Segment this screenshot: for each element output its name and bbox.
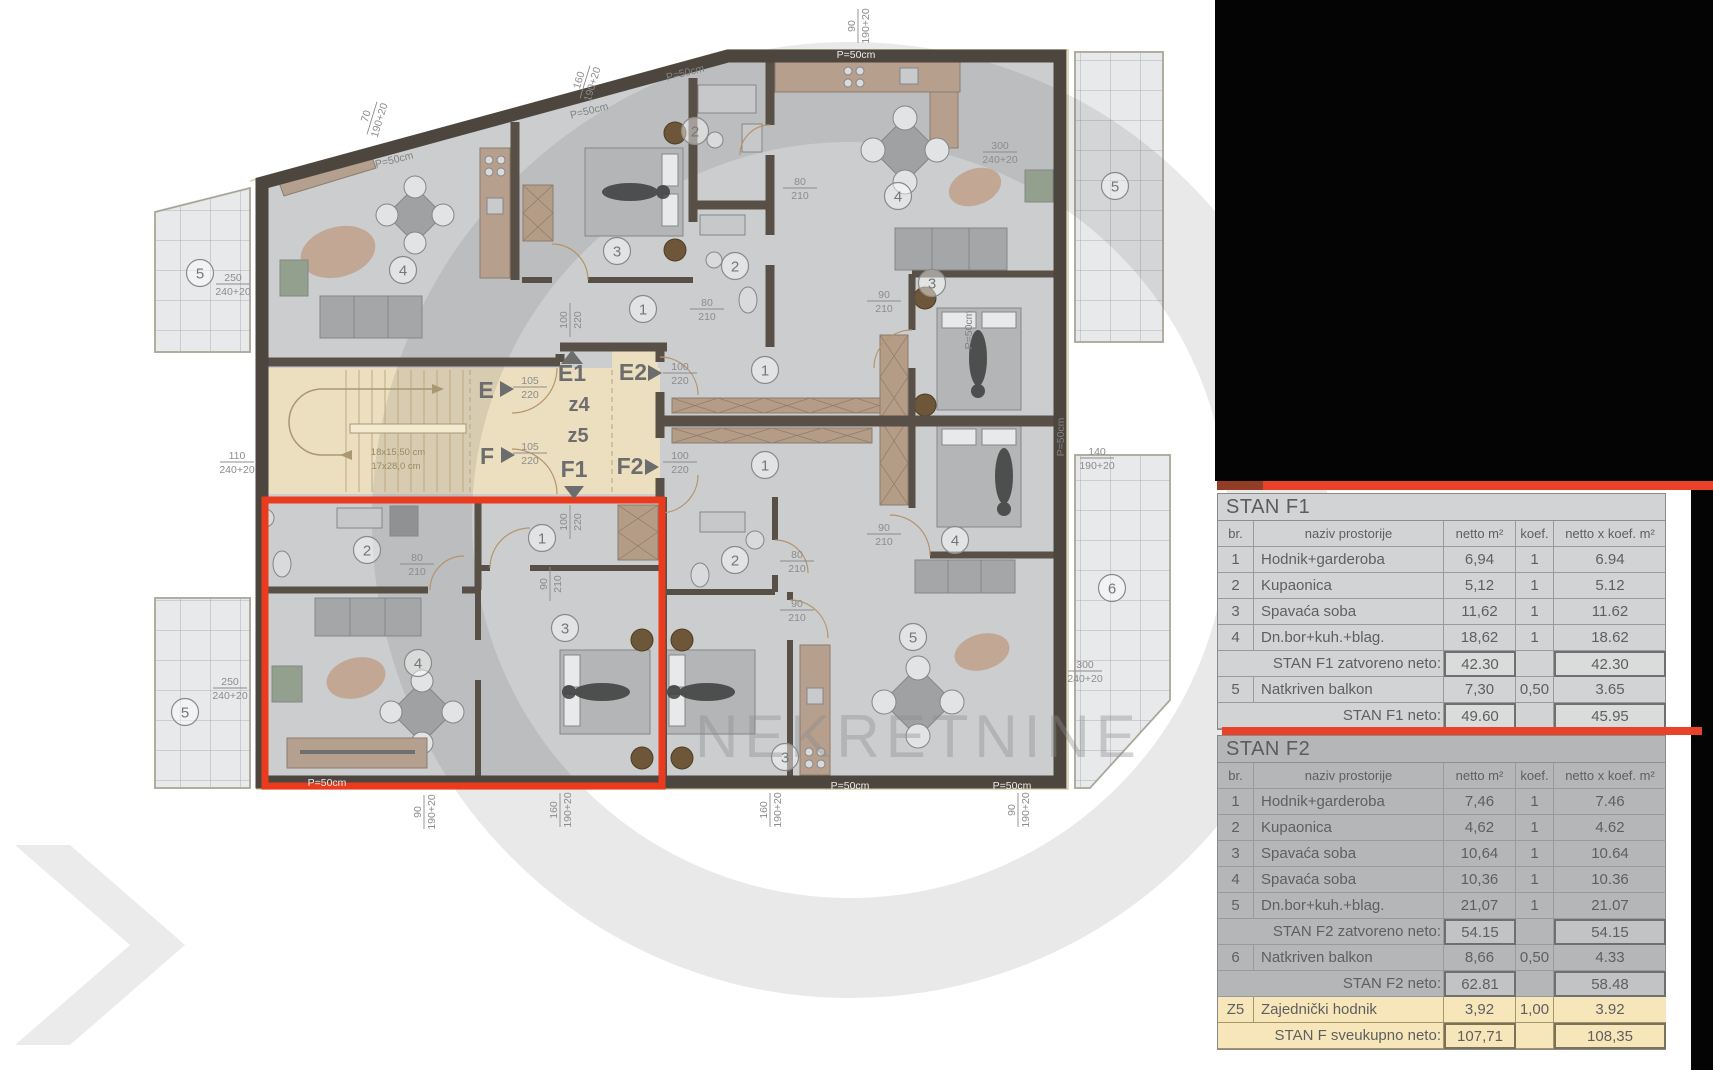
- cell-br: 1: [1218, 789, 1254, 815]
- room-number-circle: 2: [354, 537, 381, 564]
- label-entry-e2: E2: [619, 359, 647, 385]
- room-number-circle: 3: [604, 238, 631, 265]
- room-number-circle: 5: [187, 260, 214, 287]
- table-row: 5 Natkriven balkon 7,30 0,50 3.65: [1218, 677, 1665, 703]
- area-table-stan-f2: STAN F2 br. naziv prostorije netto m² ko…: [1217, 735, 1666, 1050]
- svg-text:90: 90: [538, 578, 550, 590]
- svg-text:2: 2: [731, 553, 739, 570]
- cell-br: 5: [1218, 677, 1254, 703]
- svg-text:240+20: 240+20: [982, 154, 1017, 166]
- svg-text:105: 105: [521, 375, 539, 387]
- cell-netto: 18,62: [1444, 625, 1516, 651]
- table-row: 3 Spavaća soba 10,64 1 10.64: [1218, 841, 1665, 867]
- svg-text:100: 100: [671, 450, 689, 462]
- cell-netto-koef: 6.94: [1554, 547, 1666, 573]
- svg-text:210: 210: [698, 311, 716, 323]
- cell-netto: 6,94: [1444, 547, 1516, 573]
- cell-netto-koef: 4.62: [1554, 815, 1666, 841]
- label-z5: z5: [567, 425, 588, 447]
- svg-text:220: 220: [521, 455, 539, 467]
- table-row: 1 Hodnik+garderoba 7,46 1 7.46: [1218, 789, 1665, 815]
- cell-netto: 3,92: [1444, 997, 1516, 1023]
- svg-text:240+20: 240+20: [212, 690, 247, 702]
- room-number-circle: 1: [752, 452, 779, 479]
- svg-text:5: 5: [181, 705, 189, 722]
- cell-netto-koef: 5.12: [1554, 573, 1666, 599]
- grand-total-label: STAN F sveukupno neto:: [1218, 1023, 1444, 1049]
- cell-room-name: Natkriven balkon: [1254, 945, 1444, 971]
- svg-text:3: 3: [928, 276, 936, 293]
- cell-br: 5: [1218, 893, 1254, 919]
- svg-text:240+20: 240+20: [219, 464, 254, 476]
- svg-text:100: 100: [558, 513, 570, 531]
- cell-room-name: Dn.bor+kuh.+blag.: [1254, 893, 1444, 919]
- cell-netto-koef: 3.92: [1554, 997, 1666, 1023]
- svg-text:210: 210: [408, 566, 426, 578]
- cell-netto: 4,62: [1444, 815, 1516, 841]
- svg-text:240+20: 240+20: [215, 286, 250, 298]
- cell-netto-koef: 21.07: [1554, 893, 1666, 919]
- svg-text:90: 90: [878, 522, 890, 534]
- cell-room-name: Kupaonica: [1254, 573, 1444, 599]
- cell-koef: 1: [1516, 841, 1554, 867]
- cell-room-name: Zajednički hodnik: [1254, 997, 1444, 1023]
- svg-text:190+20: 190+20: [1020, 792, 1032, 827]
- svg-text:5: 5: [196, 266, 204, 283]
- cell-koef: 1: [1516, 867, 1554, 893]
- col-header: naziv prostorije: [1254, 521, 1444, 547]
- total-label: STAN F1 neto:: [1218, 703, 1444, 729]
- masked-strip-right: [1691, 481, 1713, 1070]
- dimension-label: 110240+20: [219, 450, 254, 476]
- col-header: naziv prostorije: [1254, 763, 1444, 789]
- table-row: 5 Dn.bor+kuh.+blag. 21,07 1 21.07: [1218, 893, 1665, 919]
- cell-netto-koef: 11.62: [1554, 599, 1666, 625]
- room-number-circle: 4: [885, 183, 912, 210]
- svg-text:80: 80: [791, 549, 803, 561]
- svg-text:210: 210: [875, 536, 893, 548]
- cell-netto-koef: 7.46: [1554, 789, 1666, 815]
- svg-text:210: 210: [788, 612, 806, 624]
- cell-koef: 1: [1516, 815, 1554, 841]
- parapet-height-label: P=50cm: [1055, 417, 1067, 456]
- cell-koef: 0,50: [1516, 677, 1554, 703]
- total-netto: 49.60: [1444, 703, 1516, 729]
- table-row: 3 Spavaća soba 11,62 1 11.62: [1218, 599, 1665, 625]
- parapet-height-label: P=50cm: [993, 780, 1032, 792]
- agency-watermark-text: NEKRETNINE: [695, 703, 1142, 770]
- col-header: br.: [1218, 763, 1254, 789]
- cell-netto-koef: 4.33: [1554, 945, 1666, 971]
- grand-total-row: STAN F sveukupno neto: 107,71 108,35: [1218, 1023, 1665, 1049]
- cell-netto-koef: 3.65: [1554, 677, 1666, 703]
- cell-koef: 0,50: [1516, 945, 1554, 971]
- svg-text:160: 160: [758, 801, 770, 819]
- cell-koef: 1,00: [1516, 997, 1554, 1023]
- total-total: 58.48: [1554, 971, 1666, 997]
- red-separator-top: [1217, 481, 1713, 490]
- svg-text:3: 3: [613, 244, 621, 261]
- svg-text:5: 5: [1111, 179, 1119, 196]
- svg-text:250: 250: [221, 676, 239, 688]
- cell-netto: 10,36: [1444, 867, 1516, 893]
- svg-text:240+20: 240+20: [1067, 673, 1102, 685]
- table-header-row: br. naziv prostorije netto m² koef. nett…: [1218, 521, 1665, 547]
- subtotal-netto: 42.30: [1444, 651, 1516, 677]
- room-number-circle: 4: [390, 257, 417, 284]
- svg-text:1: 1: [761, 363, 769, 380]
- room-number-circle: 1: [752, 357, 779, 384]
- svg-text:190+20: 190+20: [860, 8, 872, 43]
- table-row: 6 Natkriven balkon 8,66 0,50 4.33: [1218, 945, 1665, 971]
- svg-text:1: 1: [538, 531, 546, 548]
- parapet-height-label: P=50cm: [831, 780, 870, 792]
- svg-text:80: 80: [701, 297, 713, 309]
- svg-text:2: 2: [691, 124, 699, 141]
- table-total-row: STAN F1 neto: 49.60 45.95: [1218, 703, 1665, 729]
- svg-text:90: 90: [846, 20, 858, 32]
- label-entry-e: E: [478, 377, 493, 403]
- room-number-circle: 2: [722, 253, 749, 280]
- label-entry-f: F: [480, 443, 494, 469]
- svg-text:110: 110: [229, 450, 246, 462]
- svg-text:4: 4: [399, 263, 407, 280]
- grand-total-total: 108,35: [1554, 1023, 1666, 1049]
- subtotal-label: STAN F2 zatvoreno neto:: [1218, 919, 1444, 945]
- cell-netto-koef: 10.36: [1554, 867, 1666, 893]
- cell-netto-koef: 18.62: [1554, 625, 1666, 651]
- svg-text:90: 90: [878, 289, 890, 301]
- svg-text:190+20: 190+20: [426, 794, 438, 829]
- dimension-label: 90190+20: [1006, 792, 1032, 827]
- masked-region-top-right: [1215, 0, 1713, 481]
- svg-text:2: 2: [363, 543, 371, 560]
- table-row: 1 Hodnik+garderoba 6,94 1 6.94: [1218, 547, 1665, 573]
- svg-text:220: 220: [671, 375, 689, 387]
- room-number-circle: 1: [630, 296, 657, 323]
- cell-room-name: Spavaća soba: [1254, 867, 1444, 893]
- parapet-height-label: P=50cm: [837, 49, 876, 61]
- cell-netto: 10,64: [1444, 841, 1516, 867]
- svg-text:4: 4: [951, 533, 959, 550]
- table-row: 4 Dn.bor+kuh.+blag. 18,62 1 18.62: [1218, 625, 1665, 651]
- cell-koef: 1: [1516, 893, 1554, 919]
- cell-room-name: Spavaća soba: [1254, 599, 1444, 625]
- cell-br: 1: [1218, 547, 1254, 573]
- total-label: STAN F2 neto:: [1218, 971, 1444, 997]
- subtotal-total: 42.30: [1554, 651, 1666, 677]
- cell-netto: 7,30: [1444, 677, 1516, 703]
- cell-room-name: Natkriven balkon: [1254, 677, 1444, 703]
- table-subtotal-row: STAN F2 zatvoreno neto: 54.15 54.15: [1218, 919, 1665, 945]
- grand-total-netto: 107,71: [1444, 1023, 1516, 1049]
- svg-text:220: 220: [572, 513, 584, 531]
- svg-text:105: 105: [521, 441, 539, 453]
- col-header: netto m²: [1444, 521, 1516, 547]
- svg-text:90: 90: [791, 598, 803, 610]
- table-total-row: STAN F2 neto: 62.81 58.48: [1218, 971, 1665, 997]
- col-header: br.: [1218, 521, 1254, 547]
- room-number-circle: 1: [529, 525, 556, 552]
- table-header-row: br. naziv prostorije netto m² koef. nett…: [1218, 763, 1665, 789]
- table-title-f2: STAN F2: [1218, 736, 1665, 763]
- svg-text:4: 4: [414, 656, 422, 673]
- col-header: netto x koef. m²: [1554, 521, 1666, 547]
- svg-text:80: 80: [411, 552, 423, 564]
- label-entry-f1: F1: [561, 456, 588, 482]
- cell-netto: 8,66: [1444, 945, 1516, 971]
- svg-text:90: 90: [412, 806, 424, 818]
- cell-br: 2: [1218, 815, 1254, 841]
- cell-netto: 5,12: [1444, 573, 1516, 599]
- svg-text:70: 70: [359, 109, 374, 124]
- cell-room-name: Kupaonica: [1254, 815, 1444, 841]
- cell-netto: 21,07: [1444, 893, 1516, 919]
- room-number-circle: 2: [682, 118, 709, 145]
- room-number-circle: 3: [552, 615, 579, 642]
- dimension-label: 70190+20: [355, 97, 390, 139]
- subtotal-total: 54.15: [1554, 919, 1666, 945]
- cell-room-name: Dn.bor+kuh.+blag.: [1254, 625, 1444, 651]
- total-netto: 62.81: [1444, 971, 1516, 997]
- svg-text:100: 100: [671, 361, 689, 373]
- svg-text:1: 1: [761, 458, 769, 475]
- col-header: netto x koef. m²: [1554, 763, 1666, 789]
- room-number-circle: 2: [722, 547, 749, 574]
- col-header: koef.: [1516, 521, 1554, 547]
- cell-koef: 1: [1516, 547, 1554, 573]
- cell-room-name: Spavaća soba: [1254, 841, 1444, 867]
- cell-br: 2: [1218, 573, 1254, 599]
- svg-text:220: 220: [671, 464, 689, 476]
- subtotal-netto: 54.15: [1444, 919, 1516, 945]
- total-koef-empty: [1516, 703, 1554, 729]
- cell-br: 4: [1218, 625, 1254, 651]
- room-number-circle: 3: [919, 270, 946, 297]
- cell-room-name: Hodnik+garderoba: [1254, 547, 1444, 573]
- cell-br: 3: [1218, 599, 1254, 625]
- common-corridor-row: Z5 Zajednički hodnik 3,92 1,00 3.92: [1218, 997, 1665, 1023]
- svg-text:190+20: 190+20: [772, 792, 784, 827]
- col-header: netto m²: [1444, 763, 1516, 789]
- cell-room-name: Hodnik+garderoba: [1254, 789, 1444, 815]
- area-table-stan-f1: STAN F1 br. naziv prostorije netto m² ko…: [1217, 493, 1666, 730]
- room-number-circle: 4: [405, 650, 432, 677]
- cell-koef: 1: [1516, 599, 1554, 625]
- subtotal-koef-empty: [1516, 651, 1554, 677]
- svg-text:220: 220: [572, 311, 584, 329]
- cell-koef: 1: [1516, 573, 1554, 599]
- cell-netto: 11,62: [1444, 599, 1516, 625]
- cell-netto-koef: 10.64: [1554, 841, 1666, 867]
- svg-text:2: 2: [731, 259, 739, 276]
- svg-text:190+20: 190+20: [369, 102, 391, 139]
- svg-text:250: 250: [224, 272, 242, 284]
- cell-br: Z5: [1218, 997, 1254, 1023]
- cell-br: 3: [1218, 841, 1254, 867]
- dimension-label: 90190+20: [412, 794, 438, 829]
- dimension-label: 160190+20: [758, 792, 784, 827]
- cell-br: 4: [1218, 867, 1254, 893]
- svg-text:210: 210: [788, 563, 806, 575]
- svg-text:210: 210: [791, 190, 809, 202]
- svg-text:140: 140: [1088, 446, 1106, 458]
- total-total: 45.95: [1554, 703, 1666, 729]
- label-entry-f2: F2: [617, 453, 644, 479]
- red-separator-top-dark-cap: [1217, 481, 1263, 490]
- room-number-circle: 6: [1099, 575, 1126, 602]
- svg-text:90: 90: [1006, 804, 1018, 816]
- svg-text:100: 100: [558, 311, 570, 329]
- svg-text:5: 5: [909, 630, 917, 647]
- svg-text:300: 300: [991, 140, 1009, 152]
- table-row: 4 Spavaća soba 10,36 1 10.36: [1218, 867, 1665, 893]
- svg-text:220: 220: [521, 389, 539, 401]
- floor-plan-document: 18x15,50 cm 17x28,0 cm 43221431512345: [0, 0, 1713, 1070]
- room-number-circle: 5: [900, 624, 927, 651]
- cell-koef: 1: [1516, 625, 1554, 651]
- room-number-circle: 5: [1102, 173, 1129, 200]
- parapet-height-label: P=50cm: [308, 777, 347, 789]
- svg-text:1: 1: [639, 302, 647, 319]
- svg-text:210: 210: [875, 303, 893, 315]
- cell-netto: 7,46: [1444, 789, 1516, 815]
- svg-text:80: 80: [794, 176, 806, 188]
- logo-watermark-chevron: [15, 845, 185, 1045]
- stair-dimension-note: 17x28,0 cm: [371, 461, 420, 472]
- total-koef-empty: [1516, 971, 1554, 997]
- table-subtotal-row: STAN F1 zatvoreno neto: 42.30 42.30: [1218, 651, 1665, 677]
- grand-total-koef-empty: [1516, 1023, 1554, 1049]
- room-number-circle: 4: [942, 527, 969, 554]
- table-row: 2 Kupaonica 4,62 1 4.62: [1218, 815, 1665, 841]
- cell-koef: 1: [1516, 789, 1554, 815]
- subtotal-label: STAN F1 zatvoreno neto:: [1218, 651, 1444, 677]
- svg-text:3: 3: [561, 621, 569, 638]
- col-header: koef.: [1516, 763, 1554, 789]
- room-number-circle: 5: [172, 699, 199, 726]
- table-row: 2 Kupaonica 5,12 1 5.12: [1218, 573, 1665, 599]
- svg-text:160: 160: [548, 801, 560, 819]
- parapet-height-label: P=50cm: [963, 310, 975, 349]
- stair-dimension-note: 18x15,50 cm: [371, 447, 425, 458]
- svg-text:210: 210: [552, 575, 564, 593]
- cell-br: 6: [1218, 945, 1254, 971]
- svg-text:190+20: 190+20: [562, 792, 574, 827]
- dimension-label: 90190+20: [846, 8, 872, 43]
- svg-text:300: 300: [1076, 659, 1094, 671]
- svg-text:6: 6: [1108, 581, 1116, 598]
- subtotal-koef-empty: [1516, 919, 1554, 945]
- label-z4: z4: [568, 394, 590, 416]
- svg-text:4: 4: [894, 189, 902, 206]
- table-title-f1: STAN F1: [1218, 494, 1665, 521]
- red-separator-middle: [1222, 727, 1702, 735]
- svg-text:190+20: 190+20: [1079, 460, 1114, 472]
